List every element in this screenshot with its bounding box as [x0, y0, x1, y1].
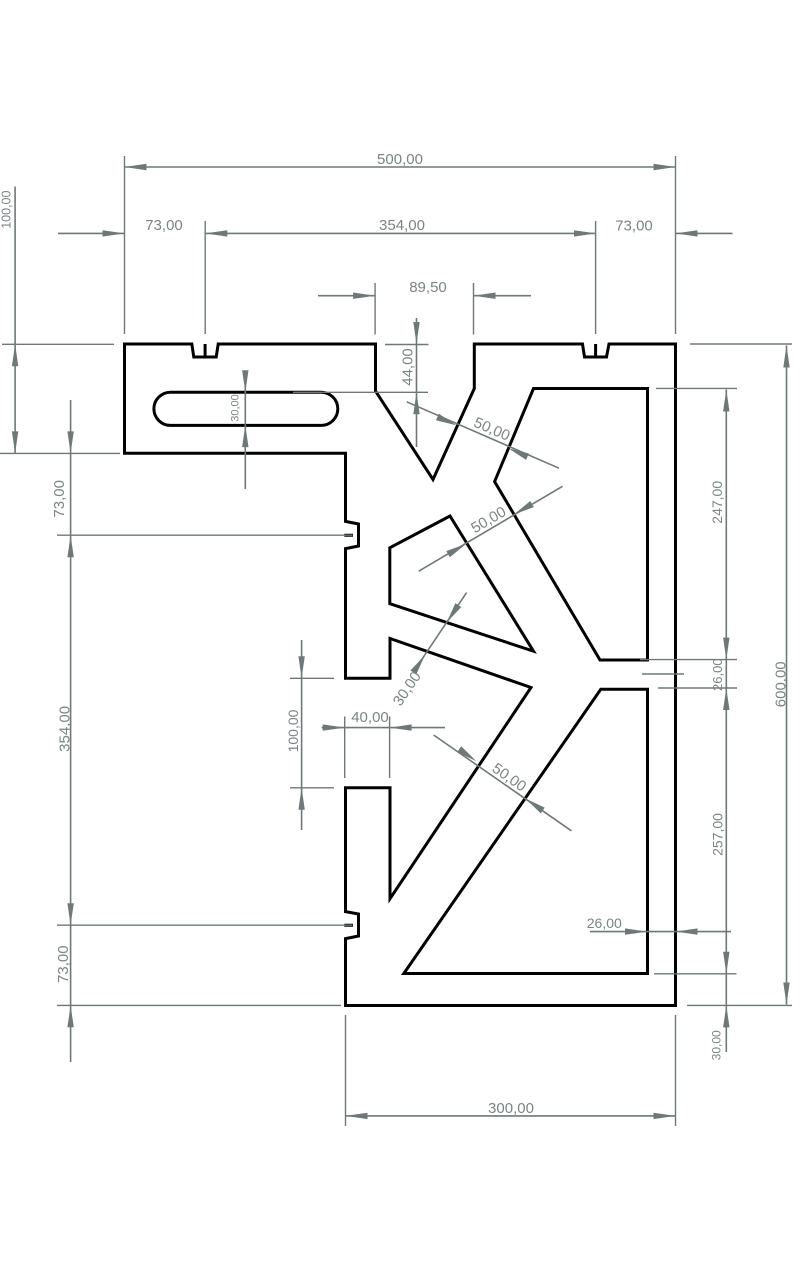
svg-text:73,00: 73,00: [615, 218, 653, 235]
svg-text:30,00: 30,00: [230, 394, 242, 422]
svg-text:257,00: 257,00: [709, 813, 725, 856]
svg-text:50,00: 50,00: [471, 414, 512, 445]
svg-text:30,00: 30,00: [390, 669, 425, 710]
svg-text:44,00: 44,00: [400, 348, 417, 386]
svg-text:100,00: 100,00: [285, 709, 301, 752]
svg-text:500,00: 500,00: [377, 151, 423, 168]
svg-text:26,00: 26,00: [587, 915, 622, 931]
svg-text:89,50: 89,50: [409, 279, 447, 296]
svg-text:73,00: 73,00: [145, 217, 183, 234]
svg-text:300,00: 300,00: [488, 1100, 534, 1117]
svg-text:73,00: 73,00: [51, 480, 68, 518]
svg-text:354,00: 354,00: [379, 217, 425, 234]
svg-text:247,00: 247,00: [709, 481, 725, 524]
svg-text:26,00: 26,00: [710, 658, 725, 691]
svg-text:50,00: 50,00: [489, 760, 530, 795]
svg-text:50,00: 50,00: [468, 503, 509, 537]
svg-text:40,00: 40,00: [351, 709, 389, 726]
svg-text:600,00: 600,00: [773, 661, 790, 707]
svg-text:100,00: 100,00: [0, 191, 14, 229]
svg-text:354,00: 354,00: [56, 706, 73, 752]
svg-text:73,00: 73,00: [55, 945, 72, 983]
svg-text:30,00: 30,00: [710, 1030, 724, 1060]
